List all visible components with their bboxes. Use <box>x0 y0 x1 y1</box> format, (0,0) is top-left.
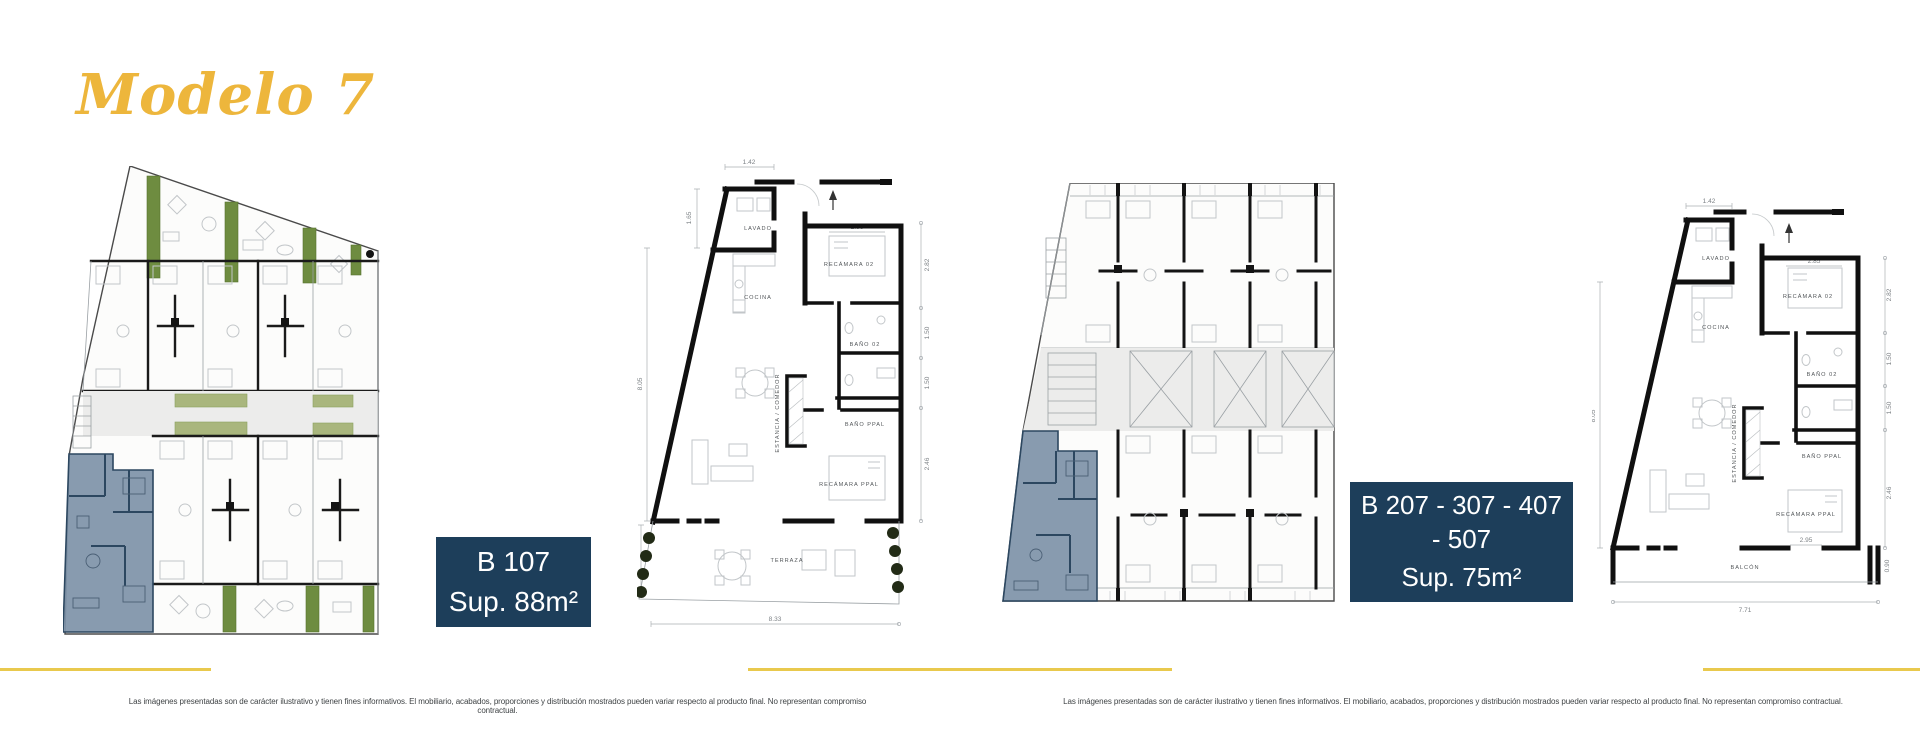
dim-right-2: 1.50 <box>924 326 931 339</box>
room-recamara2: RECÁMARA 02 <box>1783 293 1833 300</box>
unit-numbers: B 107 <box>436 544 591 580</box>
unit-plan-b207: 1.42 8.05 2.82 1.50 1.50 2.46 7.71 2.95 … <box>1592 198 1892 638</box>
room-bano-ppal: BAÑO PPAL <box>845 421 885 428</box>
terrace-outline <box>639 521 899 604</box>
room-labels: LAVADO COCINA RECÁMARA 02 BAÑO 02 BAÑO P… <box>1702 256 1842 571</box>
entry-door-arc <box>797 184 819 206</box>
unit-walls <box>1613 209 1878 582</box>
closet-hatch <box>1746 410 1760 476</box>
entry-dot <box>366 250 374 258</box>
dim-right-3: 1.50 <box>924 376 931 389</box>
dim-left-top: 1.65 <box>686 211 693 224</box>
dim-top: 1.42 <box>1703 198 1716 205</box>
building-plan-upper-floors <box>1000 183 1335 605</box>
dim-left: 8.05 <box>1592 409 1597 422</box>
highlighted-unit-b107 <box>63 454 153 632</box>
dim-right-1: 2.82 <box>1886 288 1892 301</box>
brochure-page: { "slide": { "title": "Modelo 7" }, "uni… <box>0 0 1920 741</box>
divider-right <box>1703 668 1920 671</box>
unit-area: Sup. 75m² <box>1354 561 1569 595</box>
unit-numbers: B 207 - 307 - 407 - 507 <box>1354 489 1569 557</box>
dim-top: 1.42 <box>743 159 756 166</box>
unit-area: Sup. 88m² <box>436 584 591 620</box>
dim-right-4: 2.46 <box>924 457 931 470</box>
unit-label-b207: B 207 - 307 - 407 - 507 Sup. 75m² <box>1350 482 1573 602</box>
dim-left: 8.05 <box>637 377 644 390</box>
dim-balcon: 0.90 <box>1884 559 1891 572</box>
dim-right-2: 1.50 <box>1886 352 1892 365</box>
divider-left <box>0 668 211 671</box>
room-cocina: COCINA <box>1702 325 1730 331</box>
highlighted-unit-b207 <box>1003 431 1097 601</box>
room-recamara-ppal: RECÁMARA PPAL <box>819 481 879 488</box>
room-balcon: BALCÓN <box>1730 564 1759 571</box>
room-recamara2: RECÁMARA 02 <box>824 261 874 268</box>
dim-bottom: 7.71 <box>1739 607 1752 614</box>
dim-right-3: 1.50 <box>1886 401 1892 414</box>
room-estancia: ESTANCIA / COMEDOR <box>775 373 781 452</box>
dim-right-1: 2.82 <box>924 258 931 271</box>
room-lavado: LAVADO <box>1702 256 1730 262</box>
page-title: Modelo 7 <box>76 62 375 128</box>
dim-bottom: 8.33 <box>769 616 782 623</box>
unit-furniture <box>692 198 895 585</box>
disclaimer-left: Las imágenes presentadas son de carácter… <box>110 697 885 715</box>
unit-walls <box>653 179 901 522</box>
unit-plan-b107: 1.42 1.65 8.05 2.17 2.82 1.50 1.50 2.46 … <box>637 158 937 638</box>
dim-door: 2.95 <box>1800 537 1813 544</box>
room-bano2: BAÑO 02 <box>1807 371 1838 378</box>
room-bano2: BAÑO 02 <box>850 341 881 348</box>
north-arrow-icon <box>829 190 837 210</box>
room-bano-ppal: BAÑO PPAL <box>1802 453 1842 460</box>
closet-hatch <box>789 378 803 444</box>
room-lavado: LAVADO <box>744 226 772 232</box>
dim-right-4: 2.46 <box>1886 486 1892 499</box>
dim-left-bottom: 2.17 <box>637 553 639 566</box>
disclaimer-right: Las imágenes presentadas son de carácter… <box>1063 697 1843 706</box>
north-arrow-icon <box>1785 223 1793 243</box>
divider-middle <box>748 668 1172 671</box>
entry-door-arc <box>1752 214 1774 236</box>
central-corridor <box>1023 348 1334 431</box>
room-estancia: ESTANCIA / COMEDOR <box>1732 403 1738 482</box>
unit-label-b107: B 107 Sup. 88m² <box>436 537 591 627</box>
unit-furniture <box>1650 228 1852 532</box>
room-recamara-ppal: RECÁMARA PPAL <box>1776 511 1836 518</box>
room-terraza: TERRAZA <box>770 558 803 564</box>
room-cocina: COCINA <box>744 295 772 301</box>
building-plan-ground-floor <box>63 166 388 636</box>
